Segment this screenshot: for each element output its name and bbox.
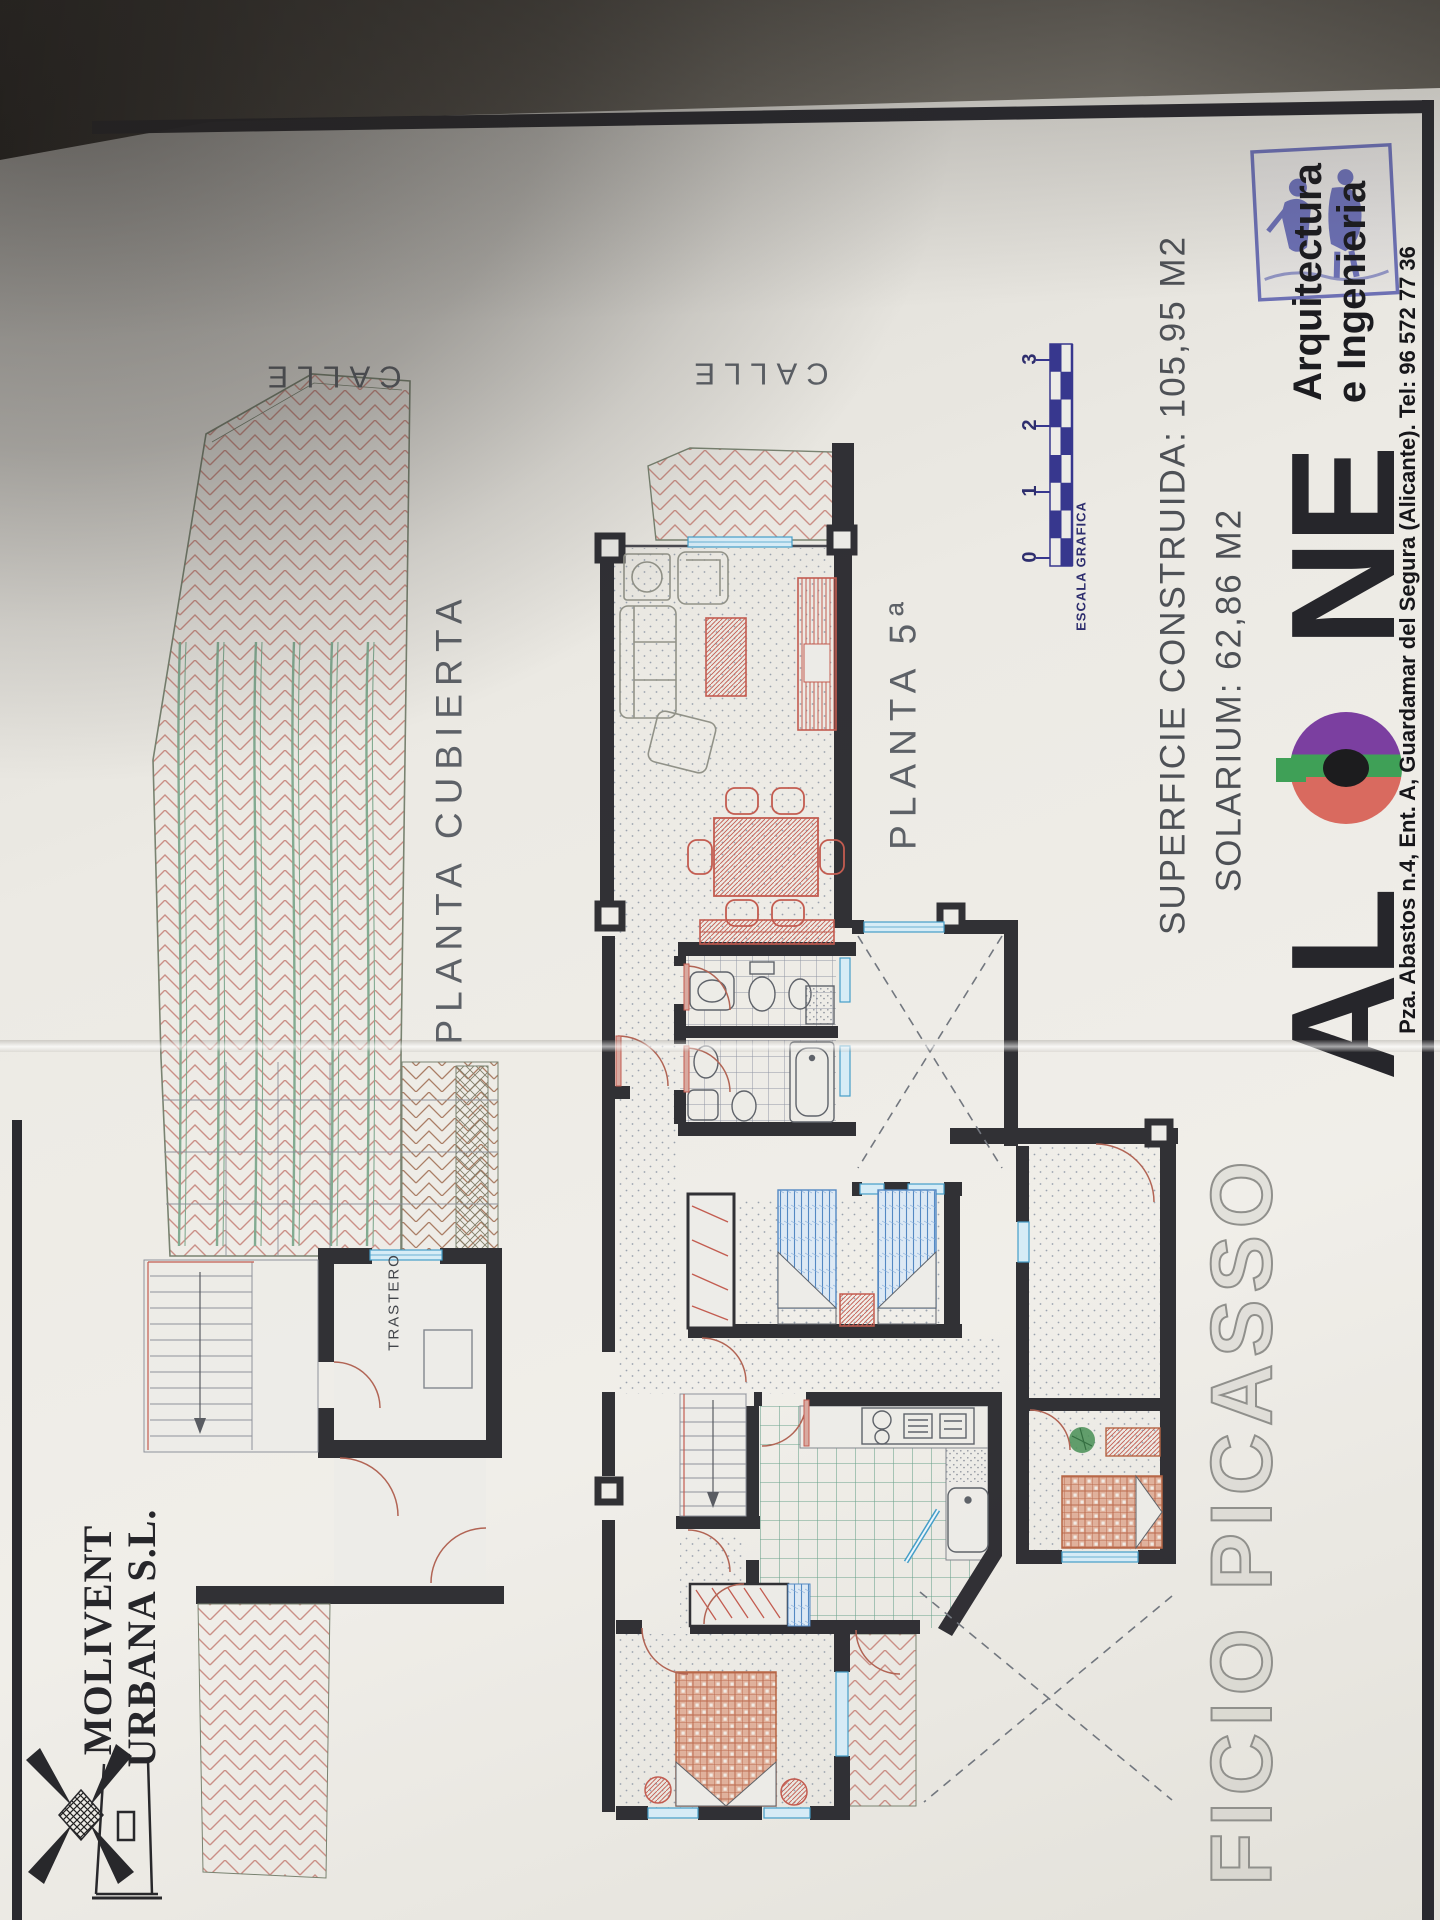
scale-caption: ESCALA GRAFICA [1075, 501, 1088, 631]
scale-tick-2: 2 [1020, 419, 1040, 430]
architect-tagline-1: Arquitectura [1288, 163, 1328, 401]
trastero-label: TRASTERO [387, 1253, 402, 1351]
street-label-right: CALLE [685, 359, 828, 390]
developer-name-1: MOLIVENT [78, 1525, 118, 1755]
built-area-text: SUPERFICIE CONSTRUIDA: 105,95 M2 [1156, 235, 1191, 935]
solarium-area-text: SOLARIUM: 62,86 M2 [1212, 508, 1247, 892]
sideboard [700, 920, 834, 944]
scale-tick-1: 1 [1020, 485, 1040, 496]
living-room-rug [706, 618, 746, 696]
graphic-scale-bar [1036, 344, 1072, 566]
tv-wall-unit [798, 578, 836, 730]
scale-tick-0: 0 [1020, 551, 1040, 562]
floor-plan-photo: CALLE CALLE PLANTA CUBIERTA PLANTA 5ª TR… [0, 0, 1440, 1920]
street-label-left: CALLE [258, 362, 401, 393]
interior-staircase [680, 1394, 746, 1516]
developer-name-2: URBANA S.L. [122, 1509, 162, 1768]
building-title-outline: FICIO PICASSO [1199, 1154, 1285, 1885]
left-plan-title: PLANTA CUBIERTA [431, 591, 468, 1044]
bedroom3-items [1062, 1427, 1162, 1548]
alone-logo-o-disc [1290, 712, 1402, 824]
paper-fold-crease [0, 1040, 1440, 1052]
scale-tick-3: 3 [1020, 353, 1040, 364]
architect-tagline-2: e Ingenieria [1332, 181, 1372, 403]
right-plan-title: PLANTA 5ª [885, 594, 922, 850]
trastero-window [370, 1250, 442, 1260]
architect-address: Pza. Abastos n.4, Ent. A, Guardamar del … [1397, 246, 1419, 1034]
roof-staircase [144, 1260, 318, 1452]
wardrobe [688, 1194, 734, 1328]
